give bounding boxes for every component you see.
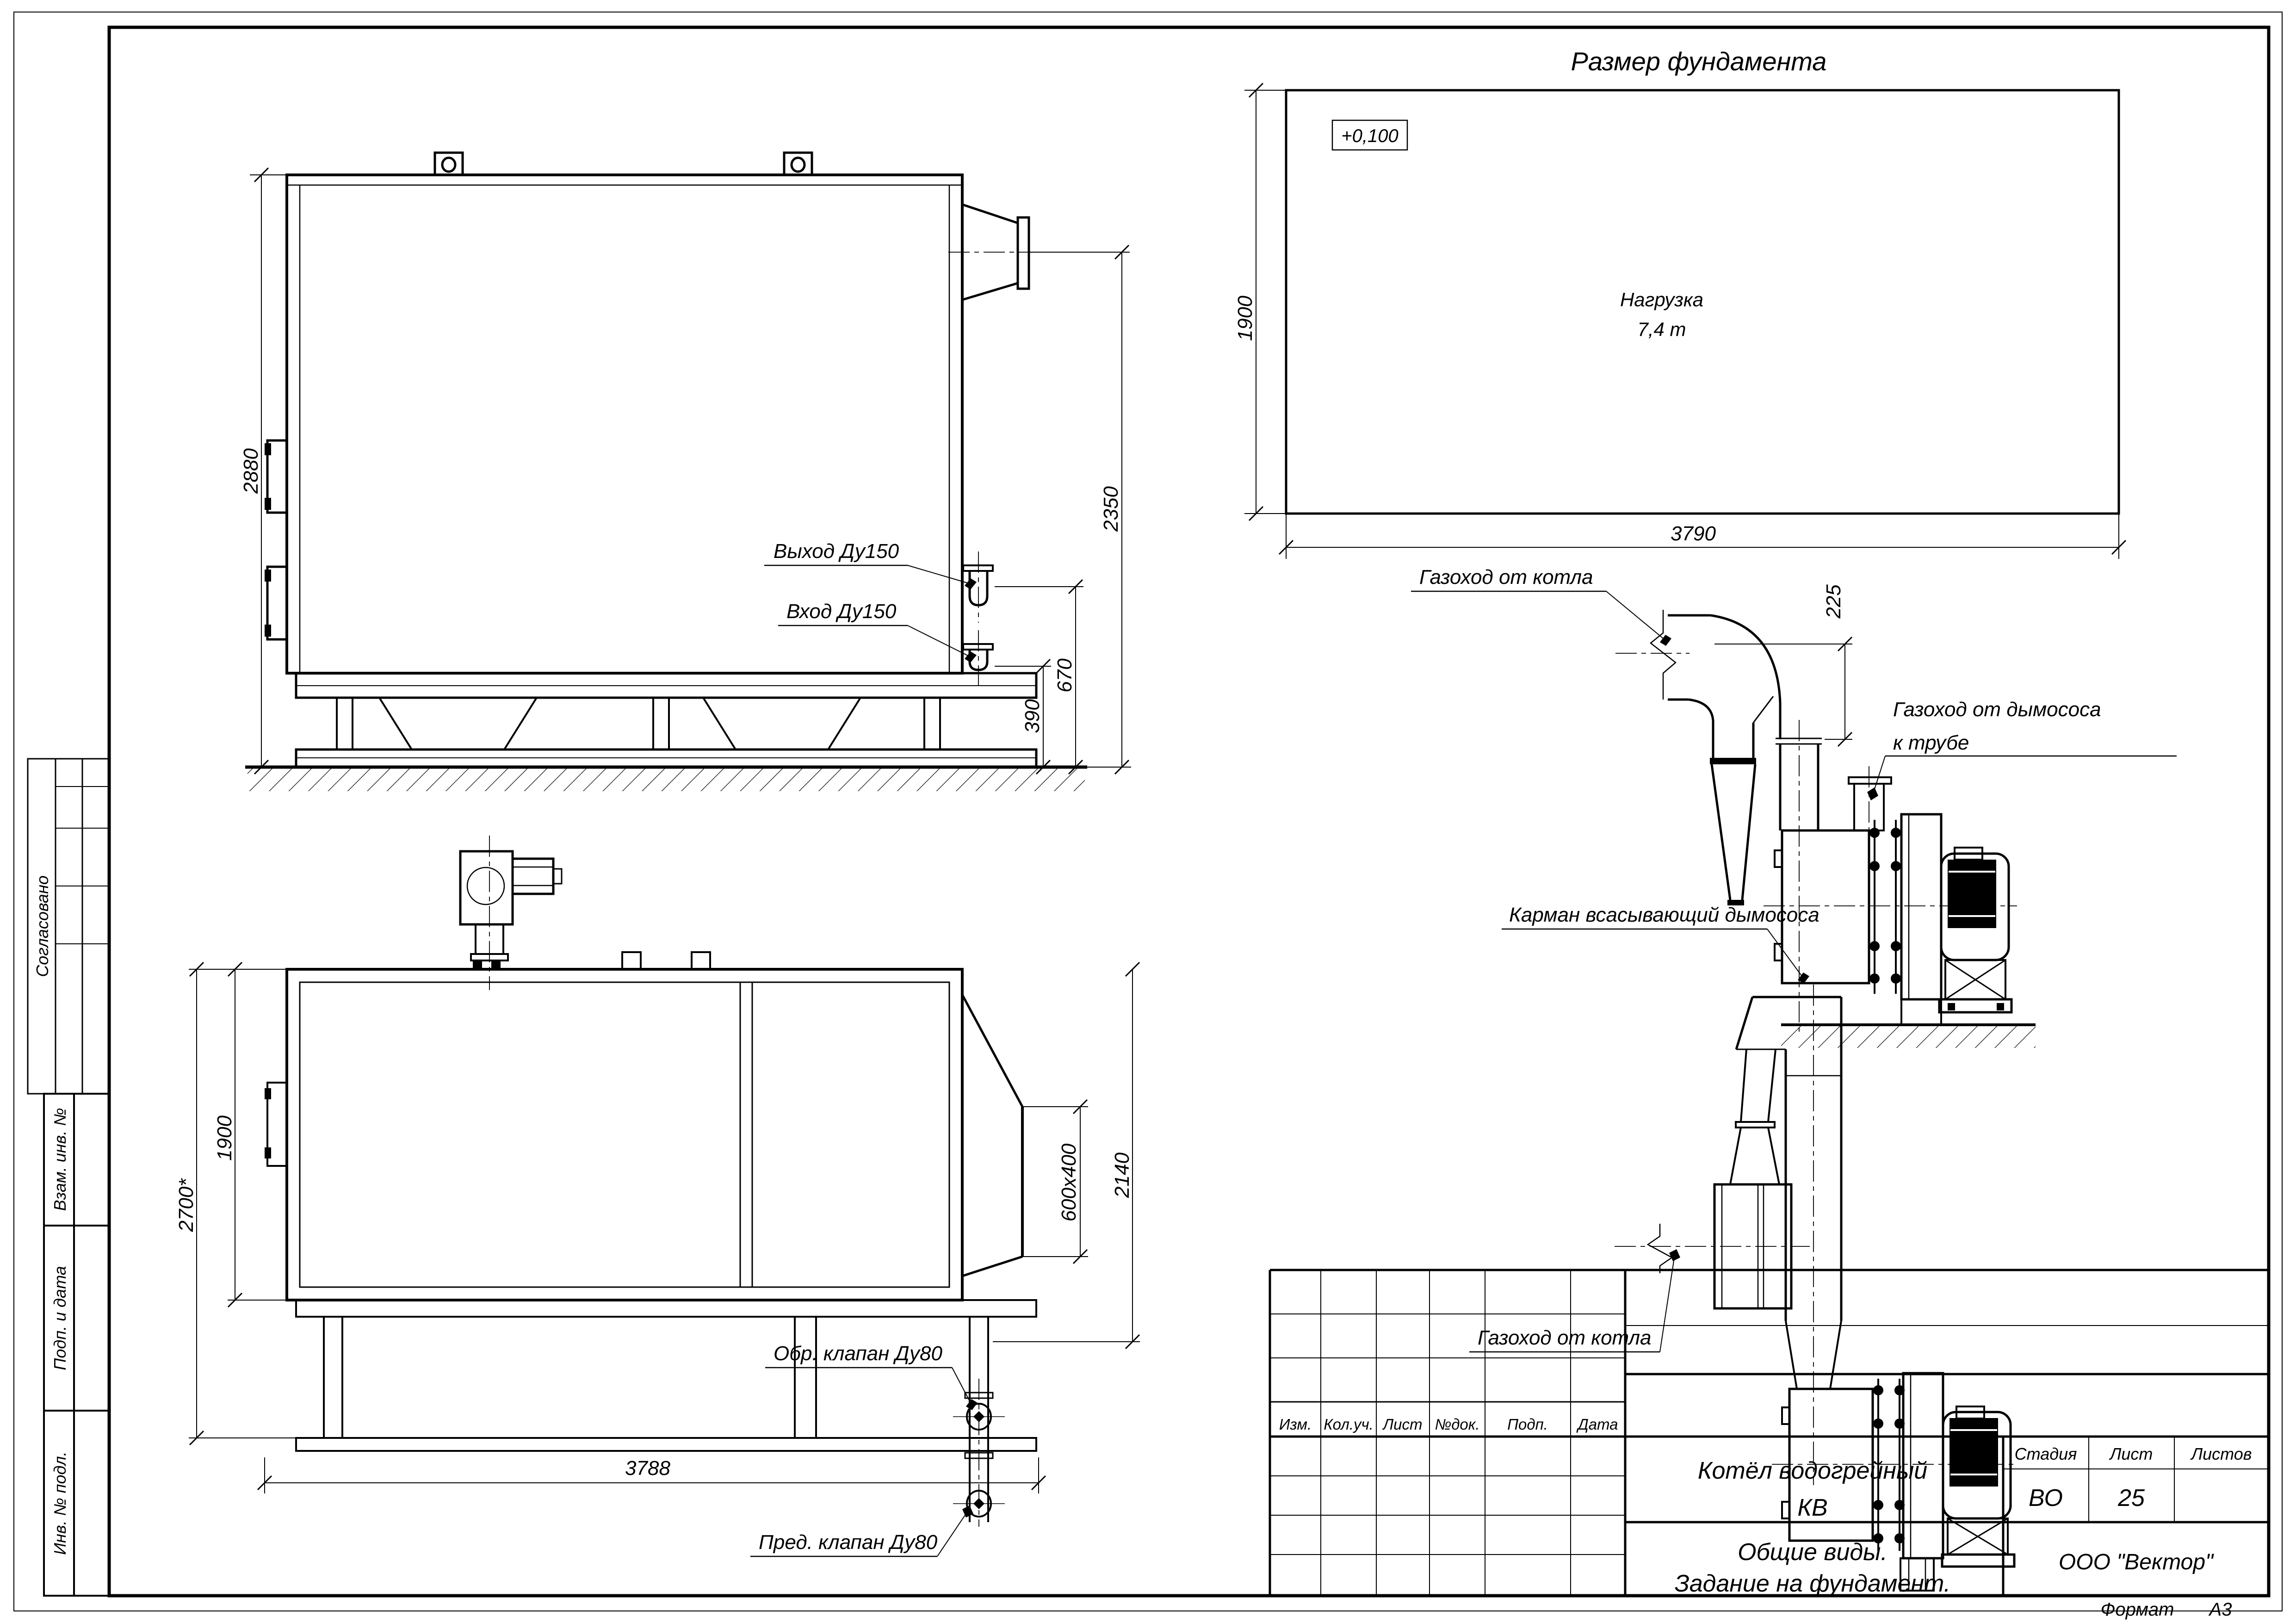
flange-bolts — [1869, 820, 1901, 994]
rev-header-podp: Подп. — [1507, 1416, 1548, 1433]
company-name: ООО "Вектор" — [2059, 1550, 2214, 1574]
drawing-sheet: Согласовано Взам. инв. № Подп. и дата Ин… — [0, 0, 2296, 1623]
side-view-dimensions: 2880 2350 670 390 — [240, 168, 1131, 774]
label-to-stack-2: к трубе — [1893, 731, 1969, 754]
foundation-plan: Размер фундамента +0,100 Нагрузка 7,4 т … — [1234, 47, 2126, 559]
rev-header-koluch: Кол.уч. — [1324, 1416, 1374, 1433]
sheet-label: Лист — [2109, 1444, 2153, 1463]
inlet-label: Вход Ду150 — [778, 600, 977, 663]
dim-2140: 2140 — [1111, 1152, 1133, 1198]
dim-1900-foundation: 1900 — [1234, 296, 1256, 341]
label-safety-valve: Пред. клапан Ду80 — [759, 1531, 938, 1554]
dim-225: 225 — [1822, 584, 1845, 619]
dim-2700: 2700* — [175, 1178, 198, 1233]
ground-hatching — [245, 767, 1087, 791]
stage-value: ВО — [2029, 1485, 2063, 1511]
lifting-lug-left — [435, 153, 463, 175]
burner-doors — [265, 440, 287, 639]
rev-header-izm: Изм. — [1279, 1416, 1312, 1433]
dim-2880: 2880 — [240, 448, 262, 494]
boiler-body — [287, 175, 962, 673]
plan-body — [287, 969, 962, 1300]
dim-670: 670 — [1053, 658, 1076, 693]
label-duct2-from-boiler: Газоход от котла — [1478, 1326, 1652, 1349]
valve-piping — [953, 1317, 1005, 1527]
format-label: Формат — [2101, 1599, 2174, 1620]
dim-3790: 3790 — [1671, 522, 1716, 545]
safety-valve-label: Пред. клапан Ду80 — [750, 1505, 973, 1556]
base-frame — [296, 673, 1036, 767]
check-valve-label: Обр. клапан Ду80 — [765, 1342, 978, 1410]
dim-390: 390 — [1021, 699, 1044, 733]
rev-header-data: Дата — [1576, 1416, 1618, 1433]
dim-3788: 3788 — [625, 1457, 670, 1480]
stamp-inv: Инв. № подл. — [50, 1451, 69, 1555]
label-pocket: Карман всасывающий дымососа — [1509, 904, 1819, 926]
burner-unit — [460, 836, 562, 990]
duct-to-stack-label: Газоход от дымососа к трубе — [1867, 698, 2177, 800]
gas-duct-plan-view: Газоход от котла — [1469, 985, 2017, 1591]
stage-label: Стадия — [2015, 1444, 2077, 1463]
boiler-plan-view: 1900 2700* 3788 600x400 2140 Обр — [175, 836, 1140, 1556]
boiler-side-view: 2880 2350 670 390 Выход Ду150 — [240, 153, 1131, 791]
lifting-lug-right — [784, 153, 812, 175]
plan-view-dimensions: 1900 2700* 3788 600x400 2140 — [175, 962, 1140, 1493]
doc-title-line1: Котёл водогрейный — [1698, 1457, 1927, 1484]
sheets-label: Листов — [2190, 1444, 2252, 1463]
elevation-mark: +0,100 — [1341, 126, 1398, 146]
label-check-valve: Обр. клапан Ду80 — [774, 1342, 943, 1365]
doc-title-line2: КВ — [1797, 1494, 1827, 1521]
gas-duct-side-view: Газоход от котла — [1411, 566, 2177, 1048]
foundation-title: Размер фундамента — [1571, 47, 1827, 76]
rev-header-ndok: №док. — [1435, 1416, 1479, 1433]
stamp-soglasovano: Согласовано — [33, 875, 52, 977]
outlet-label: Выход Ду150 — [764, 540, 977, 589]
label-to-stack-1: Газоход от дымососа — [1893, 698, 2101, 721]
title-block: Изм. Кол.уч. Лист №док. Подп. Дата Стади… — [1270, 1270, 2269, 1620]
dim-2350: 2350 — [1100, 486, 1122, 532]
load-line1: Нагрузка — [1620, 289, 1703, 310]
dim-600x400: 600x400 — [1058, 1143, 1080, 1221]
rev-header-list: Лист — [1382, 1416, 1423, 1433]
label-duct-from-boiler: Газоход от котла — [1419, 566, 1593, 588]
duct-from-boiler-label: Газоход от котла — [1411, 566, 1671, 646]
left-stamp-column: Согласовано Взам. инв. № Подп. и дата Ин… — [28, 759, 109, 1596]
format-value: А3 — [2209, 1599, 2232, 1620]
load-line2: 7,4 т — [1637, 318, 1686, 340]
cyclone-pocket — [1710, 696, 1773, 905]
label-in: Вход Ду150 — [786, 600, 897, 623]
duct2-from-boiler-label: Газоход от котла — [1469, 1249, 1680, 1352]
stamp-podp: Подп. и дата — [50, 1266, 69, 1370]
dim-225-group: 225 — [1714, 584, 1852, 746]
label-out: Выход Ду150 — [774, 540, 899, 563]
pocket-label: Карман всасывающий дымососа — [1502, 904, 1819, 984]
dim-1900-plan: 1900 — [213, 1115, 236, 1161]
duct-ground-hatching — [1781, 1025, 2036, 1048]
sheet-frame — [14, 12, 2282, 1611]
doc-subtitle-line1: Общие виды. — [1738, 1539, 1888, 1566]
sheet-value: 25 — [2117, 1485, 2145, 1511]
stamp-vzam: Взам. инв. № — [50, 1108, 69, 1211]
